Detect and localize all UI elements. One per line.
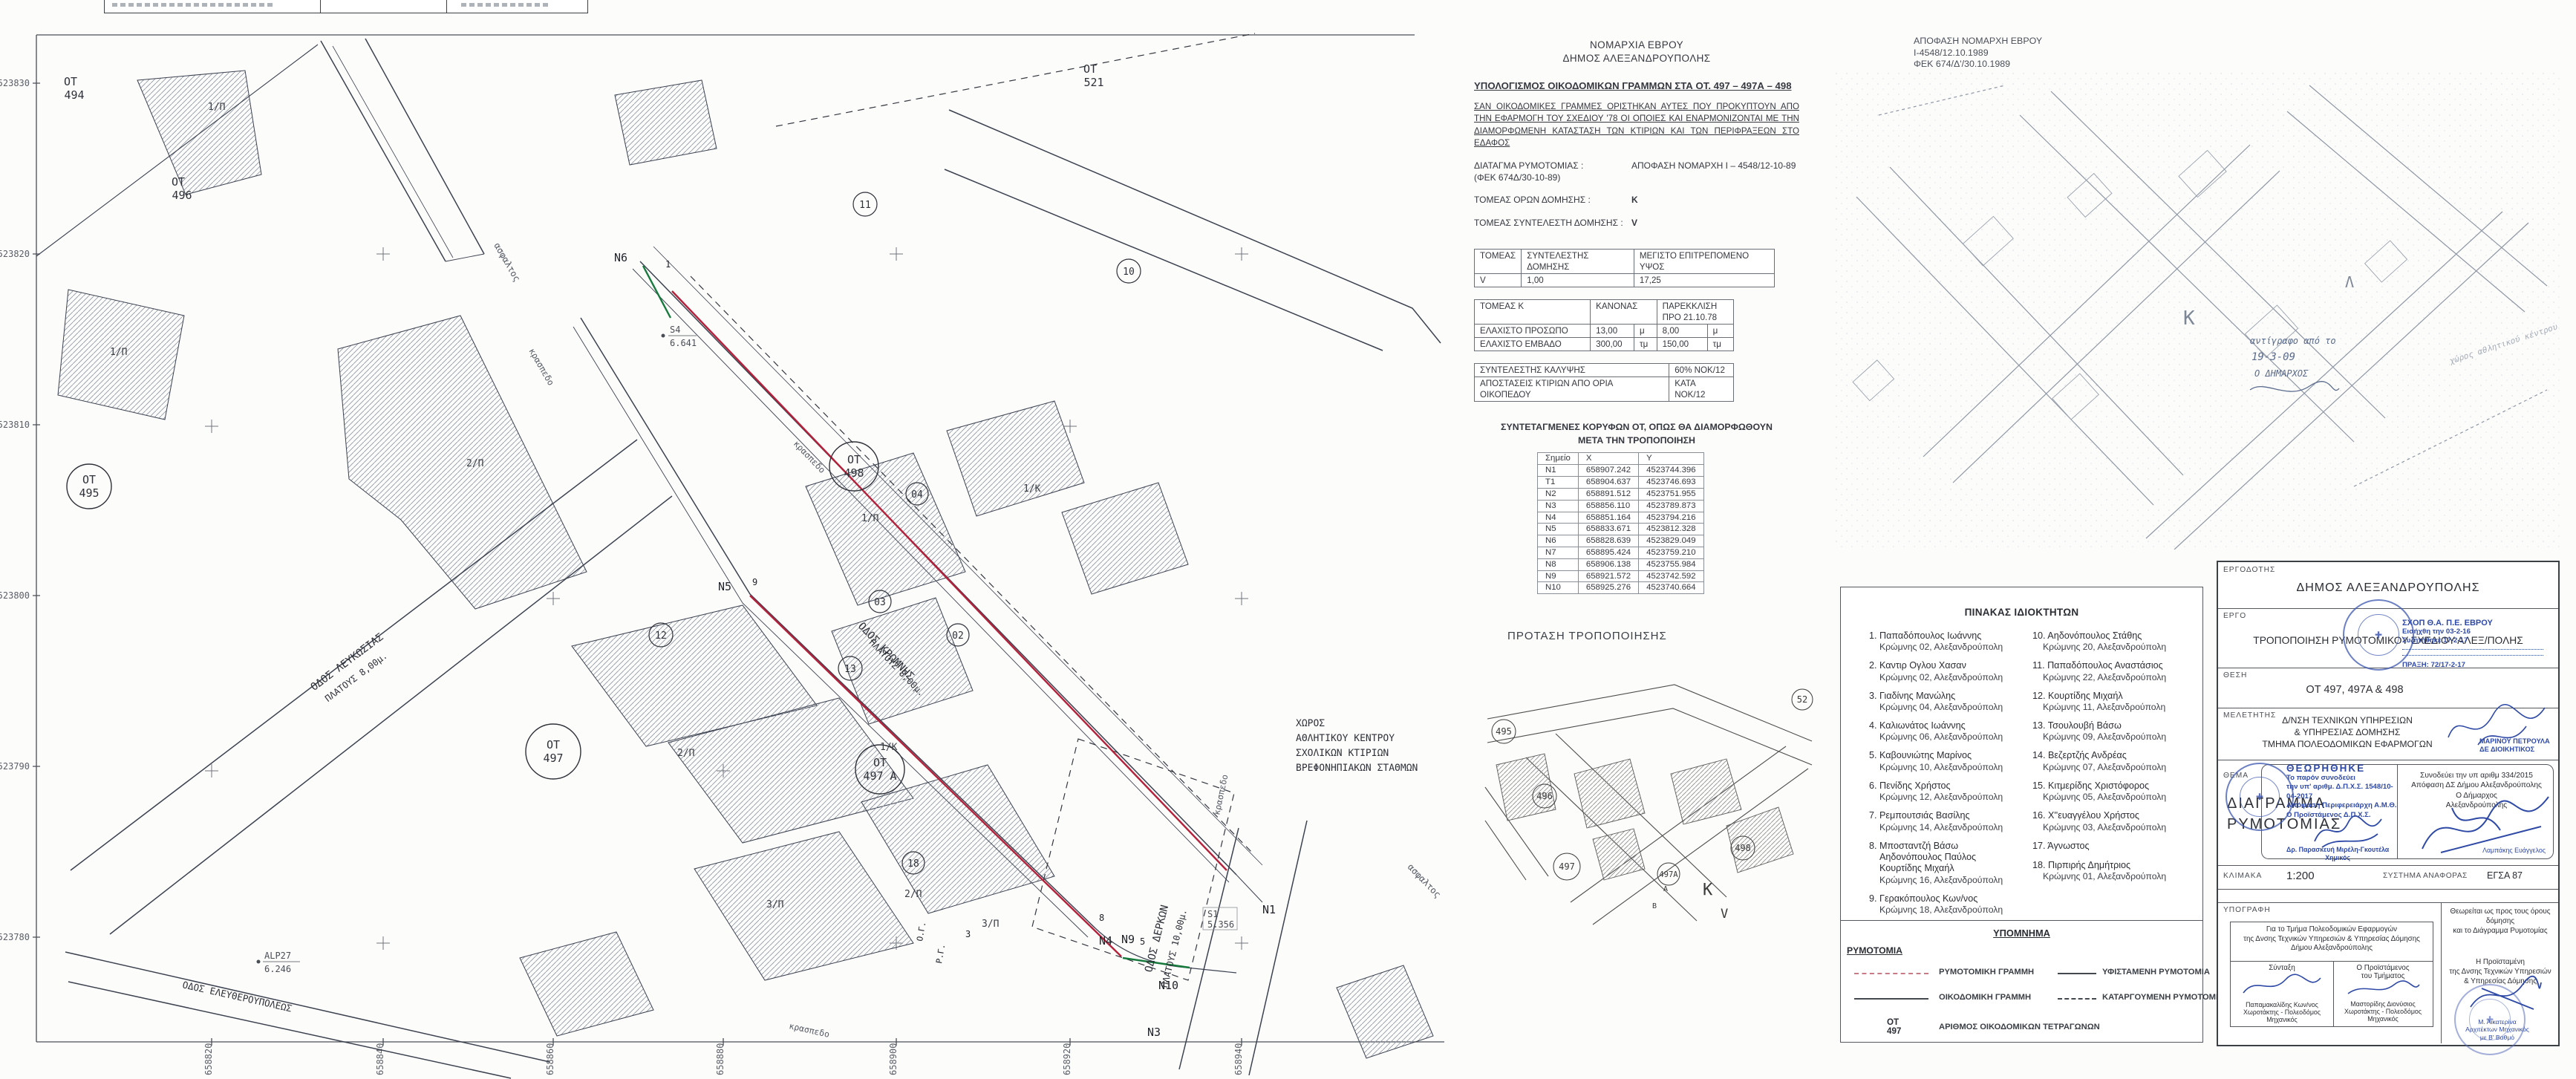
block-label-521: 521 <box>1083 76 1103 89</box>
coord-cell: 4523759.210 <box>1639 547 1704 559</box>
approval-signature <box>2463 974 2545 1018</box>
proposal-blocks <box>1496 754 1793 880</box>
t1-h2: ΣΥΝΤΕΛΕΣΤΗΣ ΔΟΜΗΣΗΣ <box>1522 249 1634 273</box>
t1-h1: ΤΟΜΕΑΣ <box>1475 249 1522 273</box>
fek-line2: Ι-4548/12.10.1989 <box>1914 48 2042 59</box>
owner-entry: 18. Πιρπιρής ΔημήτριοςΚρώμνης 01, Αλεξαν… <box>2032 860 2192 881</box>
seal-emblem-icon: ✚ <box>2240 777 2279 816</box>
coord-cell: N5 <box>1538 524 1579 535</box>
coords-h-y: Y <box>1639 453 1704 465</box>
signature-squiggle <box>2471 977 2541 1009</box>
sector-table-1: ΤΟΜΕΑΣ ΣΥΝΤΕΛΕΣΤΗΣ ΔΟΜΗΣΗΣ ΜΕΓΙΣΤΟ ΕΠΙΤΡ… <box>1474 249 1775 287</box>
coord-row: N6658828.6394523829.049 <box>1538 535 1704 547</box>
org-line2: ΔΗΜΟΣ ΑΛΕΞΑΝΔΡΟΥΠΟΛΗΣ <box>1474 52 1799 65</box>
owner-entry: 5. Καβουνιώτης ΜαρίνοςΚρώμνης 10, Αλεξαν… <box>1869 750 2029 772</box>
coord-cell: 4523794.216 <box>1639 512 1704 524</box>
coord-cell: 658833.671 <box>1578 524 1638 535</box>
parcel-p8: 3/Π <box>766 899 783 910</box>
fek-letter-k: Κ <box>2183 307 2195 330</box>
point-n5: N5 <box>718 580 731 593</box>
block-label-497-prefix: ΟΤ <box>547 738 560 752</box>
approval-signer-role2: με Β' Βαθμό <box>2453 1034 2542 1041</box>
vertex-9: 9 <box>752 577 757 587</box>
parcel-circle-10: 10 <box>1123 267 1135 278</box>
block-label-495-prefix: ΟΤ <box>82 473 96 486</box>
owner-entry: 3. Γιαδίνης ΜανώληςΚρώμνης 04, Αλεξανδρο… <box>1869 691 2029 712</box>
coord-row: N10658925.2764523740.664 <box>1538 582 1704 594</box>
th-title: ΘΕΩΡΗΘΗΚΕ <box>2286 763 2398 774</box>
title-block: ΕΡΓΟΔΟΤΗΣ ΔΗΜΟΣ ΑΛΕΞΑΝΔΡΟΥΠΟΛΗΣ ΕΡΓΟ ΤΡΟ… <box>2217 561 2560 1046</box>
signature-divider <box>2441 902 2442 1043</box>
coord-row: N8658906.1384523755.984 <box>1538 558 1704 570</box>
ref-label: ΣΥΣΤΗΜΑ ΑΝΑΦΟΡΑΣ <box>2383 872 2468 880</box>
area-note-line1: ΧΩΡΟΣ <box>1296 718 1325 729</box>
fek-line1: ΑΠΟΦΑΣΗ ΝΟΜΑΡΧΗ ΕΒΡΟΥ <box>1914 36 2042 48</box>
approval-p1: Η Προϊσταμένη <box>2445 957 2555 967</box>
truncated-header-table <box>104 0 588 13</box>
coord-row: N2658891.5124523751.955 <box>1538 488 1704 500</box>
road-surface-asphalt: ασφαλτος <box>492 241 522 284</box>
owner-entry: 14. Βεζερτζής ΑνδρέαςΚρώμνης 07, Αλεξανδ… <box>2032 750 2192 772</box>
designer-signatures <box>2433 693 2552 760</box>
vertex-5: 5 <box>1140 936 1145 947</box>
t2-ra: ΕΛΑΧΙΣΤΟ ΠΡΟΣΩΠΟ <box>1475 324 1591 337</box>
legend-label-rymotomiki: ΡΥΜΟΤΟΜΙΚΗ ΓΡΑΜΜΗ <box>1939 968 2034 977</box>
t2-ra1u: μ <box>1634 324 1657 337</box>
coord-cell: 4523746.693 <box>1639 477 1704 489</box>
owners-box: ΠΙΝΑΚΑΣ ΙΔΙΟΚΤΗΤΩΝ 1. Παπαδόπουλος Ιωάνν… <box>1840 587 2203 1043</box>
coord-cell: 658895.424 <box>1578 547 1638 559</box>
legend-sample-rymotomiki <box>1854 973 1928 974</box>
coords-h-point: Σημείο <box>1538 453 1579 465</box>
block-label-496: 496 <box>172 189 192 202</box>
buildings <box>58 71 1433 1058</box>
coord-cell: 4523740.664 <box>1639 582 1704 594</box>
t2-h1: ΚΑΝΟΝΑΣ <box>1591 299 1657 324</box>
area-note-line2: ΑΘΛΗΤΙΚΟΥ ΚΕΝΤΡΟΥ <box>1296 733 1395 744</box>
owner-entry: 6. Πενίδης ΧρήστοςΚρώμνης 12, Αλεξανδρού… <box>1869 780 2029 802</box>
sig-head3: Δήμου Αλεξανδρούπολης <box>2231 944 2433 954</box>
t2-ra2u: μ <box>1707 324 1733 337</box>
block-label-494-prefix: ΟΤ <box>64 75 77 88</box>
legend-divider <box>1841 920 2202 921</box>
legend-label-yfistameni: ΥΦΙΣΤΑΜΕΝΗ ΡΥΜΟΤΟΜΙΑ <box>2102 968 2210 977</box>
parcel-p6: 2/Π <box>677 748 694 759</box>
t2-rb1u: τμ <box>1634 337 1657 351</box>
mayor-line1: Συνοδεύει την υπ αριθμ 334/2015 <box>2403 771 2550 780</box>
coord-cell: 4523744.396 <box>1639 465 1704 477</box>
illegible-text <box>112 3 275 7</box>
point-n6: N6 <box>614 251 627 264</box>
org-line1: ΝΟΜΑΡΧΙΑ ΕΒΡΟΥ <box>1474 39 1799 52</box>
scale-value: 1:200 <box>2286 870 2315 882</box>
y-tick: 4523810 <box>0 420 30 430</box>
scale-label: ΚΛΙΜΑΚΑ <box>2223 872 2262 880</box>
coverage-table: ΣΥΝΤΕΛΕΣΤΗΣ ΚΑΛΥΨΗΣ 60% ΝΟΚ/12 ΑΠΟΣΤΑΣΕΙ… <box>1474 363 1734 402</box>
owner-entry: 9. Γερακόπουλος Κων/νοςΚρώμνης 18, Αλεξα… <box>1869 893 2029 915</box>
coords-table-body: N1658907.2424523744.396T1658904.63745237… <box>1538 465 1704 594</box>
drawing-sheet: 4523830 4523820 4523810 4523800 4523790 … <box>0 0 2576 1079</box>
t1-r1: V <box>1475 273 1522 287</box>
ratio-value: V <box>1631 218 1637 228</box>
t2-corner: ΤΟΜΕΑΣ Κ <box>1475 299 1591 324</box>
th-signer: Δρ. Παρασκευή Μιρέλη-Γκουτέλα Χημικός <box>2286 846 2389 861</box>
proposal-letter-a: Α <box>1663 885 1668 893</box>
block-label-495: 495 <box>79 486 99 500</box>
sig-head2: της Δνσης Τεχνικών Υπηρεσιών & Υπηρεσίας… <box>2231 935 2433 945</box>
benchmark-s1: S1 <box>1207 909 1218 919</box>
main-map: 4523830 4523820 4523810 4523800 4523790 … <box>0 0 1448 1079</box>
coord-row: N3658856.1104523789.873 <box>1538 500 1704 512</box>
parcel-p1: 2/Π <box>466 458 483 469</box>
parcel-circle-02: 02 <box>952 630 964 642</box>
coord-cell: N7 <box>1538 547 1579 559</box>
y-tick: 4523830 <box>0 78 30 88</box>
table-divider <box>320 0 321 13</box>
proposal-block-495: 495 <box>1496 726 1512 737</box>
sector-value: Κ <box>1631 195 1638 205</box>
sxop-title: ΣΧΟΠ Θ.Α. Π.Ε. ΕΒΡΟΥ <box>2402 619 2551 627</box>
signature-squiggle <box>2422 797 2549 853</box>
fek-line3: ΦΕΚ 674/Δ'/30.10.1989 <box>1914 59 2042 71</box>
legend-label-oikodomiki: ΟΙΚΟΔΟΜΙΚΗ ΓΡΑΜΜΗ <box>1939 993 2031 1002</box>
coord-cell: N2 <box>1538 488 1579 500</box>
coord-row: N9658921.5724523742.592 <box>1538 570 1704 582</box>
approval-line1: Θεωρείται ως προς τους όρους δόμησης <box>2445 907 2555 926</box>
parcel-p7: 3/Π <box>982 919 999 930</box>
coord-cell: 658925.276 <box>1578 582 1638 594</box>
sig-author-role: Χωροτάκτης - Πολεοδόμος Μηχανικός <box>2231 1008 2333 1023</box>
y-axis-ticks: 4523830 4523820 4523810 4523800 4523790 … <box>0 78 30 942</box>
parcel-p5: 1/Κ <box>880 742 898 753</box>
fek-hand-line1: αντίγραφο από το <box>2250 336 2336 346</box>
signature-squiggle <box>2448 705 2545 745</box>
road-surface-asphalt-2: ασφαλτος <box>1406 861 1443 899</box>
ratio-label: ΤΟΜΕΑΣ ΣΥΝΤΕΛΕΣΤΗ ΔΟΜΗΣΗΣ : <box>1474 218 1631 229</box>
sig-head-title2: του Τμήματος <box>2333 972 2433 980</box>
vertex-3: 3 <box>965 929 971 939</box>
coord-cell: 658856.110 <box>1578 500 1638 512</box>
coord-cell: 658921.572 <box>1578 570 1638 582</box>
point-n1: N1 <box>1262 903 1276 916</box>
coords-h-x: X <box>1578 453 1638 465</box>
block-label-497a: 497 Α <box>863 769 896 783</box>
owner-entry: 8. Μποσταντζή ΒάσωΑηδονόπουλος ΠαύλοςΚου… <box>1869 841 2029 885</box>
ref-value: ΕΓΣΑ 87 <box>2487 870 2523 881</box>
area-note-line3: ΣΧΟΛΙΚΩΝ ΚΤΙΡΙΩΝ <box>1296 748 1389 759</box>
fek-header: ΑΠΟΦΑΣΗ ΝΟΜΑΡΧΗ ΕΒΡΟΥ Ι-4548/12.10.1989 … <box>1914 36 2042 71</box>
benchmark-alp27-value: 6.246 <box>264 964 291 974</box>
coord-cell: 658828.639 <box>1578 535 1638 547</box>
signature-label: ΥΠΟΓΡΑΦΗ <box>2223 906 2271 914</box>
signature-box: Για το Τμήμα Πολεοδομικών Εφαρμογών της … <box>2230 922 2433 1027</box>
coord-cell: 4523812.328 <box>1639 524 1704 535</box>
t3-rbv: ΚΑΤΑ ΝΟΚ/12 <box>1669 377 1734 402</box>
coord-row: N4658851.1644523794.216 <box>1538 512 1704 524</box>
approval-signer-name: Μ. Αικατερίνα <box>2453 1018 2542 1026</box>
curb-label-2: κρασπεδο <box>526 347 556 388</box>
t2-rb2u: τμ <box>1707 337 1733 351</box>
t2-rb2: 150,00 <box>1657 337 1707 351</box>
coords-heading-2: ΜΕΤΑ ΤΗΝ ΤΡΟΠΟΠΟΙΗΣΗ <box>1474 434 1799 446</box>
proposal-letter-k: Κ <box>1703 881 1713 899</box>
block-label-498: 498 <box>844 466 864 480</box>
street-eleftheroupoleos: ΟΔΟΣ ΕΛΕΥΘΕΡΟΥΠΟΛΕΩΣ <box>181 979 293 1014</box>
sxop-praxis: ΠΡΑΞΗ: 72/17-2-17 <box>2402 661 2551 670</box>
th-line2: Το παρόν συνοδεύει <box>2286 774 2398 783</box>
author-signature <box>2237 972 2326 999</box>
block-label-494: 494 <box>64 88 84 102</box>
signature-squiggle <box>2315 816 2381 847</box>
approval-signer: Μ. Αικατερίνα Αρχιτέκτων Μηχανικός με Β'… <box>2453 1018 2542 1041</box>
legend: ΥΠΟΜΝΗΜΑ ΡΥΜΟΤΟΜΙΑ ΡΥΜΟΤΟΜΙΚΗ ΓΡΑΜΜΗ ΥΦΙ… <box>1841 923 2202 1042</box>
sig-box-hline <box>2231 961 2433 962</box>
employer-label: ΕΡΓΟΔΟΤΗΣ <box>2223 566 2275 574</box>
sxop-stamp: ΣΧΟΠ Θ.Α. Π.Ε. ΕΒΡΟΥ Εισήχθη την 03-2-16… <box>2402 619 2551 670</box>
x-tick: 658880 <box>715 1043 725 1075</box>
coord-cell: N10 <box>1538 582 1579 594</box>
legend-ot-symbol: ΟΤ497 <box>1887 1018 1901 1036</box>
seal-emblem-icon: ✚ <box>2358 614 2399 655</box>
y-tick: 4523790 <box>0 761 30 772</box>
sig-head1: Για το Τμήμα Πολεοδομικών Εφαρμογών <box>2231 925 2433 935</box>
owner-entry: 7. Ρεμπουτσιάς ΒασίληςΚρώμνης 14, Αλεξαν… <box>1869 810 2029 832</box>
owner-entry: 15. Κιτμερίδης ΧριστόφοροςΚρώμνης 05, Αλ… <box>2032 780 2192 802</box>
line-tag-rg: Ρ.Γ. <box>934 943 947 964</box>
owners-title: ΠΙΝΑΚΑΣ ΙΔΙΟΚΤΗΤΩΝ <box>1841 607 2202 618</box>
parcel-p4: 1/Π <box>208 102 225 113</box>
t2-rb1: 300,00 <box>1591 337 1634 351</box>
mayor-name: Λαμπάκης Ευάγγελος <box>2482 847 2546 854</box>
owner-entry: 16. Χ''ευαγγέλου ΧρήστοςΚρώμνης 03, Αλεξ… <box>2032 810 2192 832</box>
owner-entry: 1. Παπαδόπουλος ΙωάννηςΚρώμνης 02, Αλεξα… <box>1869 630 2029 652</box>
parcel-circle-18: 18 <box>907 858 919 870</box>
vertex-1: 1 <box>665 259 671 270</box>
dotted-leader <box>2402 649 2543 650</box>
proposal-block-497a: 497Α <box>1659 870 1678 879</box>
calc-paragraph: ΣΑΝ ΟΙΚΟΔΟΜΙΚΕΣ ΓΡΑΜΜΕΣ ΟΡΙΣΤΗΚΑΝ ΑΥΤΕΣ … <box>1474 101 1799 149</box>
th-line3: την υπ' αριθμ. Δ.Π.Χ.Σ. 1548/10-04-2017 <box>2286 783 2398 801</box>
dotted-leader <box>2402 655 2543 656</box>
x-tick: 658860 <box>545 1043 555 1075</box>
th-signer-name: Δρ. Παρασκευή Μιρέλη-Γκουτέλα <box>2286 846 2389 854</box>
calculation-block: ΝΟΜΑΡΧΙΑ ΕΒΡΟΥ ΔΗΜΟΣ ΑΛΕΞΑΝΔΡΟΥΠΟΛΗΣ ΥΠΟ… <box>1474 39 1799 594</box>
owner-entry: 17. Άγνωστος <box>2032 841 2192 852</box>
curb-label-4: κρασπεδο <box>788 1020 830 1040</box>
owner-entry: 4. Καλιωνάτος ΙωάννηςΚρώμνης 06, Αλεξανδ… <box>1869 720 2029 742</box>
calc-title: ΥΠΟΛΟΓΙΣΜΟΣ ΟΙΚΟΔΟΜΙΚΩΝ ΓΡΑΜΜΩΝ ΣΤΑ ΟΤ. … <box>1474 79 1799 92</box>
point-n3: N3 <box>1147 1026 1161 1039</box>
th-line4: Απόφαση Περιφερειάρχη Α.Μ.Θ. <box>2286 801 2398 810</box>
owner-entry: 11. Παπαδόπουλος ΑναστάσιοςΚρώμνης 22, Α… <box>2032 660 2192 682</box>
t1-r2: 1,00 <box>1522 273 1634 287</box>
t2-ra1: 13,00 <box>1591 324 1634 337</box>
parcel-circle-04: 04 <box>911 489 923 501</box>
approval-signer-role1: Αρχιτέκτων Μηχανικός <box>2453 1026 2542 1033</box>
legend-label-katargoumeni: ΚΑΤΑΡΓΟΥΜΕΝΗ ΡΥΜΟΤΟΜΙΑ <box>2102 993 2224 1002</box>
coord-cell: 4523755.984 <box>1639 558 1704 570</box>
benchmark-s4-value: 6.641 <box>670 338 697 348</box>
point-n4: N4 <box>1099 934 1112 948</box>
point-n9: N9 <box>1121 933 1135 946</box>
x-tick: 658940 <box>1233 1043 1244 1075</box>
block-label-498-prefix: ΟΤ <box>847 453 861 466</box>
coord-cell: T1 <box>1538 477 1579 489</box>
parcel-circle-03: 03 <box>874 597 886 608</box>
sig-author-title: Σύνταξη <box>2231 964 2333 972</box>
sig-author-name: Παπαμακαλίδης Κων/νος <box>2231 1001 2333 1008</box>
owners-col-right: 10. Αηδονόπουλος ΣτάθηςΚρώμνης 20, Αλεξα… <box>2032 630 2192 890</box>
tb-row-signatures: ΥΠΟΓΡΑΦΗ Για το Τμήμα Πολεοδομικών Εφαρμ… <box>2218 902 2558 1043</box>
y-tick: 4523780 <box>0 932 30 942</box>
coord-row: T1658904.6374523746.693 <box>1538 477 1704 489</box>
owner-entry: 10. Αηδονόπουλος ΣτάθηςΚρώμνης 20, Αλεξα… <box>2032 630 2192 652</box>
coord-cell: 4523829.049 <box>1639 535 1704 547</box>
head-signature <box>2342 980 2424 998</box>
parcel-p2: 1/Κ <box>1023 483 1041 495</box>
greek-state-seal-2: ✚ <box>2226 763 2294 831</box>
coord-cell: 658904.637 <box>1578 477 1638 489</box>
proposal-block-496: 496 <box>1536 791 1553 801</box>
proposal-letter-v: V <box>1721 907 1728 922</box>
tb-row-scale: ΚΛΙΜΑΚΑ 1:200 ΣΥΣΤΗΜΑ ΑΝΑΦΟΡΑΣ ΕΓΣΑ 87 <box>2218 865 2558 890</box>
legend-ot-desc: ΑΡΙΘΜΟΣ ΟΙΚΟΔΟΜΙΚΩΝ ΤΕΤΡΑΓΩΝΩΝ <box>1939 1023 2100 1031</box>
coord-row: N5658833.6714523812.328 <box>1538 524 1704 535</box>
block-label-496-prefix: ΟΤ <box>172 175 185 189</box>
legend-group: ΡΥΜΟΤΟΜΙΑ <box>1847 945 1902 956</box>
proposal-block-497: 497 <box>1559 861 1575 872</box>
parcel-circle-11: 11 <box>859 200 871 211</box>
tb-row-spacer <box>2218 889 2558 903</box>
fek-hand-line2: 19-3-09 <box>2251 351 2295 363</box>
block-label-497: 497 <box>543 752 563 765</box>
x-tick: 658840 <box>375 1043 385 1075</box>
t2-h2: ΠΑΡΕΚΚΛΙΣΗΠΡΟ 21.10.78 <box>1657 299 1733 324</box>
th-signer-role: Χημικός <box>2286 854 2389 862</box>
parcel-circle-12: 12 <box>655 630 667 642</box>
table-divider <box>446 0 447 13</box>
vertex-8: 8 <box>1099 913 1104 923</box>
t1-h3: ΜΕΓΙΣΤΟ ΕΠΙΤΡΕΠΟΜΕΝΟ ΥΨΟΣ <box>1634 249 1774 273</box>
x-tick: 658820 <box>203 1043 214 1075</box>
legend-sample-katargoumeni <box>2058 998 2096 1000</box>
benchmark-alp27: ALP27 <box>264 951 291 961</box>
tb-row-theme: ΘΕΜΑ Συνοδεύει την υπ αριθμ 334/2015 Από… <box>2218 760 2558 866</box>
fek-hand-line3: Ο ΔΗΜΑΡΧΟΣ <box>2254 368 2309 379</box>
project-label: ΕΡΓΟ <box>2223 612 2246 620</box>
t1-r3: 17,25 <box>1634 273 1774 287</box>
sig-cell-head: Ο Προϊστάμενος του Τμήματος Μαστορίδης Δ… <box>2333 964 2433 1023</box>
proposal-title: ΠΡΟΤΑΣΗ ΤΡΟΠΟΠΟΙΗΣΗΣ <box>1507 630 1667 642</box>
curb-label-3: κρασπεδο <box>1211 773 1230 815</box>
coord-cell: 658907.242 <box>1578 465 1638 477</box>
sector-label: ΤΟΜΕΑΣ ΟΡΩΝ ΔΟΜΗΣΗΣ : <box>1474 195 1631 206</box>
legend-sample-yfistameni <box>2058 973 2096 974</box>
coord-cell: 658851.164 <box>1578 512 1638 524</box>
y-tick: 4523800 <box>0 590 30 601</box>
greek-state-seal: ✚ <box>2343 599 2414 671</box>
location-label: ΘΕΣΗ <box>2223 671 2247 679</box>
owners-col-left: 1. Παπαδόπουλος ΙωάννηςΚρώμνης 02, Αλεξα… <box>1869 630 2029 923</box>
x-tick: 658920 <box>1062 1043 1072 1075</box>
parcel-circle-13: 13 <box>844 664 856 675</box>
approval-line2: και το Διάγραμμα Ρυμοτομίας <box>2445 926 2555 936</box>
coord-row: N7658895.4244523759.210 <box>1538 547 1704 559</box>
coords-heading-1: ΣΥΝΤΕΤΑΓΜΕΝΕΣ ΚΟΡΥΦΩΝ ΟΤ, ΟΠΩΣ ΘΑ ΔΙΑΜΟΡ… <box>1474 421 1799 433</box>
benchmark-s1-value: 5.356 <box>1207 919 1234 930</box>
proposal-map: 495 496 497 497Α 498 52 Κ V Α Β <box>1481 653 1816 928</box>
employer-value: ΔΗΜΟΣ ΑΛΕΞΑΝΔΡΟΥΠΟΛΗΣ <box>2218 581 2558 595</box>
sig-head-name: Μαστορίδης Διονύσιος <box>2333 1000 2433 1008</box>
owner-entry: 2. Καντιρ Ογλου ΧασανΚρώμνης 02, Αλεξανδ… <box>1869 660 2029 682</box>
coord-cell: N6 <box>1538 535 1579 547</box>
sig-head-role: Χωροτάκτης - Πολεοδόμος Μηχανικός <box>2333 1008 2433 1023</box>
coord-cell: N4 <box>1538 512 1579 524</box>
area-note: ΧΩΡΟΣ ΑΘΛΗΤΙΚΟΥ ΚΕΝΤΡΟΥ ΣΧΟΛΙΚΩΝ ΚΤΙΡΙΩΝ… <box>1296 718 1418 774</box>
coords-table: Σημείο X Y N1658907.2424523744.396T16589… <box>1537 452 1704 594</box>
scan-noise <box>1834 71 2562 550</box>
sig-cell-author: Σύνταξη Παπαμακαλίδης Κων/νος Χωροτάκτης… <box>2231 964 2333 1023</box>
illegible-text <box>461 3 550 7</box>
coord-cell: 4523789.873 <box>1639 500 1704 512</box>
sector-table-2: ΤΟΜΕΑΣ Κ ΚΑΝΟΝΑΣ ΠΑΡΕΚΚΛΙΣΗΠΡΟ 21.10.78 … <box>1474 299 1734 351</box>
coord-cell: N3 <box>1538 500 1579 512</box>
coord-cell: N9 <box>1538 570 1579 582</box>
line-tag-og: Ο.Γ. <box>915 921 927 942</box>
fek-map: Κ Λ χώρος αθλητικού κέντρου αντίγραφο απ… <box>1834 71 2562 550</box>
x-tick: 658900 <box>888 1043 899 1075</box>
coord-cell: N1 <box>1538 465 1579 477</box>
coord-cell: 4523751.955 <box>1639 488 1704 500</box>
t3-ra: ΣΥΝΤΕΛΕΣΤΗΣ ΚΑΛΥΨΗΣ <box>1475 363 1669 376</box>
y-tick: 4523820 <box>0 249 30 259</box>
coord-cell: 658891.512 <box>1578 488 1638 500</box>
proposal-block-52: 52 <box>1797 694 1807 705</box>
t3-rb: ΑΠΟΣΤΑΣΕΙΣ ΚΤΙΡΙΩΝ ΑΠΟ ΟΡΙΑ ΟΙΚΟΠΕΔΟΥ <box>1475 377 1669 402</box>
sig-head-title: Ο Προϊστάμενος <box>2333 964 2433 972</box>
curb-label-1: κρασπεδο <box>792 438 828 475</box>
parcel-p3: 1/Π <box>861 513 878 524</box>
sxop-line2: Εισήχθη την 03-2-16 <box>2402 627 2551 636</box>
t3-rav: 60% ΝΟΚ/12 <box>1669 363 1734 376</box>
x-axis-ticks: 658820 658840 658860 658880 658900 65892… <box>203 1043 1244 1075</box>
coord-cell: N8 <box>1538 558 1579 570</box>
coord-cell: 658906.138 <box>1578 558 1638 570</box>
t2-rb: ΕΛΑΧΙΣΤΟ ΕΜΒΑΔΟ <box>1475 337 1591 351</box>
coord-cell: 4523742.592 <box>1639 570 1704 582</box>
block-label-497a-prefix: ΟΤ <box>873 756 887 769</box>
proposal-block-498: 498 <box>1735 843 1751 853</box>
decree-label: ΔΙΑΤΑΓΜΑ ΡΥΜΟΤΟΜΙΑΣ : <box>1474 160 1631 172</box>
area-note-line4: ΒΡΕΦΟΝΗΠΙΑΚΩΝ ΣΤΑΘΜΩΝ <box>1296 763 1418 774</box>
t2-ra2: 8,00 <box>1657 324 1707 337</box>
proposal-letter-b: Β <box>1652 902 1657 910</box>
legend-title: ΥΠΟΜΝΗΜΑ <box>1841 928 2202 939</box>
fek-letter-l: Λ <box>2345 273 2354 291</box>
coord-row: N1658907.2424523744.396 <box>1538 465 1704 477</box>
sxop-line3: Συζητήθηκε 17-2-17 <box>2402 636 2551 645</box>
block-label-521-prefix: ΟΤ <box>1083 62 1097 76</box>
parcel-p9: 2/Π <box>904 889 922 900</box>
benchmark-s4: S4 <box>670 325 680 335</box>
legend-sample-oikodomiki <box>1854 998 1928 1000</box>
parcel-p10: 1/Π <box>110 347 127 358</box>
